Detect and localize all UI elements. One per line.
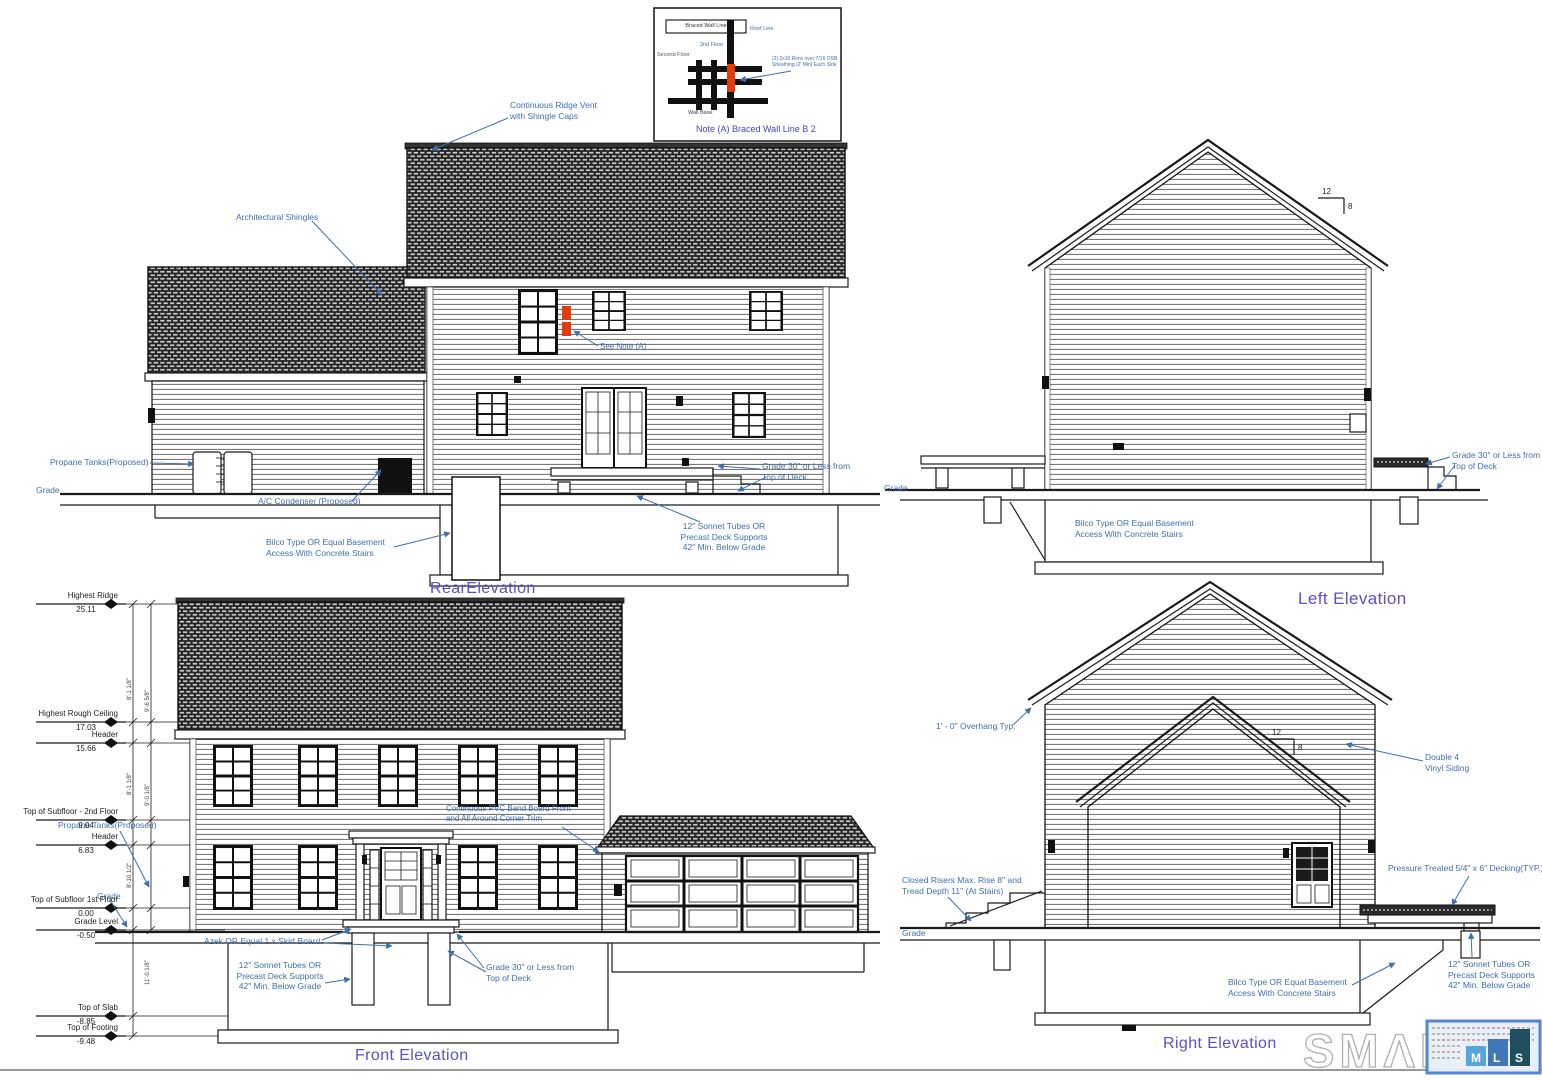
title-left-elevation: Left Elevation <box>1298 589 1407 609</box>
garage-fascia <box>596 847 875 853</box>
left-gable-wall <box>1045 152 1371 490</box>
inset-wall-base-label: Wall Base <box>688 110 713 116</box>
deck-pier <box>1461 931 1480 958</box>
light-fixture <box>676 396 683 406</box>
mls-s-letter: S <box>1515 1051 1523 1065</box>
elevation-drawing-sheet: .k{stroke:#1a1a1a;fill:none;stroke-width… <box>0 0 1542 1080</box>
front-porch <box>343 920 459 933</box>
elevation-marker-value: 6.83 <box>62 846 110 855</box>
elevation-marker-label: Top of Slab <box>6 1003 118 1012</box>
callout-grade30-left: Grade 30" or Less from Top of Deck <box>1452 450 1542 471</box>
callout-azek-skirt-board: Azek OR Equal 1 x Skirt Board <box>204 936 320 947</box>
light-fixture <box>1364 388 1371 401</box>
garage-roof <box>598 816 873 847</box>
dimension-string: 11'-0 1/8" <box>145 960 151 985</box>
porch-lantern <box>436 855 441 864</box>
right-back-door <box>1292 843 1332 907</box>
rear-main-roof <box>407 148 845 278</box>
elevation-marker-label: Header <box>6 832 118 841</box>
elevation-marker-value: 9.04 <box>62 821 110 830</box>
pitch-rise: 12 <box>1322 187 1331 196</box>
pitch-run: 8 <box>1298 743 1303 752</box>
braced-wall-highlight <box>727 64 735 92</box>
rear-garage-roof <box>148 267 425 373</box>
stair-pier <box>994 940 1010 970</box>
bulkhead <box>452 477 500 580</box>
vent <box>1113 443 1124 450</box>
inset-caption: Note (A) Braced Wall Line B 2 <box>696 124 816 135</box>
dimension-string: 8'-1 1/8" <box>127 773 133 795</box>
front-foundation <box>218 943 864 1043</box>
porch-lantern <box>362 855 367 864</box>
mls-badge: M L S <box>1427 1021 1540 1073</box>
pitch-run: 8 <box>1348 202 1353 211</box>
braced-wall-highlight <box>562 306 571 320</box>
deck-pier <box>984 497 1001 523</box>
deck-pier <box>1400 497 1418 524</box>
light-fixture <box>148 408 155 423</box>
callout-architectural-shingles: Architectural Shingles <box>236 212 318 223</box>
callout-grade30-rear: Grade 30" or Less from Top of Deck <box>762 461 862 482</box>
mls-l-letter: L <box>1493 1051 1500 1065</box>
title-right-elevation: Right Elevation <box>1163 1035 1277 1053</box>
inset-rim-note: (2) 2x10 Rims over 7/16 OSB Sheathing (2… <box>772 56 842 68</box>
callout-overhang: 1' - 0" Overhang Typ. <box>936 721 1016 732</box>
inset-second-floor-label: Second Floor <box>657 52 690 58</box>
callout-ac-condenser: A/C Condenser (Proposed) <box>258 496 361 507</box>
mls-m-letter: M <box>1471 1051 1481 1065</box>
inset-roof-line-label: Roof Line <box>750 26 774 32</box>
rear-main-fascia <box>404 278 848 287</box>
left-elevation: 12 8 <box>885 140 1488 574</box>
rear-garage-fascia <box>145 373 427 381</box>
callout-bilco-rear: Bilco Type OR Equal Basement Access With… <box>266 537 398 558</box>
callout-closed-risers: Closed Risers Max. Rise 8" and Tread Dep… <box>902 875 1062 896</box>
rear-window <box>593 292 624 330</box>
light-fixture <box>1048 840 1055 853</box>
grade-label-right-elev: Grade <box>902 928 926 939</box>
elevation-marker-value: 25.11 <box>62 605 110 614</box>
callout-bilco-left: Bilco Type OR Equal Basement Access With… <box>1075 518 1210 539</box>
pitch-rise: 12 <box>1272 728 1281 737</box>
callout-pt-decking: Pressure Treated 5/4" x 6" Decking(TYP.) <box>1388 863 1542 874</box>
callout-grade30-front: Grade 30" or Less from Top of Deck <box>486 962 576 983</box>
dimension-string: 9'-0 1/8" <box>145 784 151 806</box>
dimension-string: 9'-6 5/8" <box>145 690 151 712</box>
light-fixture <box>1042 376 1049 389</box>
callout-see-note-a: See Note (A) <box>600 342 646 352</box>
porch-pier <box>352 933 374 1005</box>
smart-mls-watermark: SMΛRT M L S <box>1303 1021 1540 1077</box>
inset-box-label: Braced Wall Line <box>668 23 744 29</box>
elevation-marker-label: Grade Level <box>6 917 118 926</box>
porch-lantern <box>1283 848 1289 858</box>
callout-pvc-band: Continuous PVC Band Board Front and All … <box>446 804 596 824</box>
callout-ridge-vent: Continuous Ridge Vent with Shingle Caps <box>510 100 620 121</box>
elevation-marker-label: Highest Rough Ceiling <box>6 709 118 718</box>
callout-sonotube-right: 12" Sonnet Tubes OR Precast Deck Support… <box>1448 959 1542 991</box>
light-fixture <box>614 884 622 896</box>
bulkhead-profile <box>1363 950 1443 1013</box>
light-fixture <box>1368 840 1375 853</box>
elevation-marker-value: -0.50 <box>62 931 110 940</box>
rear-window <box>733 393 764 437</box>
right-stairs <box>946 891 1045 928</box>
elevation-marker-label: Top of Footing <box>6 1023 118 1032</box>
elevation-marker-label: Header <box>6 730 118 739</box>
rear-elevation <box>60 143 880 586</box>
grade-label-rear-left: Grade <box>36 485 60 496</box>
right-elevation: 12 8 <box>900 582 1540 1031</box>
left-deck <box>921 456 1045 488</box>
elevation-marker-label: Highest Ridge <box>6 591 118 600</box>
callout-sonotube-front: 12" Sonnet Tubes OR Precast Deck Support… <box>224 960 336 992</box>
vent <box>514 376 521 383</box>
rear-stair-window <box>520 291 557 354</box>
inset-floor-label: 2nd Floor <box>700 42 723 48</box>
vent <box>682 458 689 466</box>
front-main-roof <box>178 602 622 730</box>
light-fixture <box>183 876 189 887</box>
callout-propane-tanks: Propane Tanks(Proposed) <box>50 457 149 468</box>
porch-pier <box>428 933 450 1005</box>
title-rear-elevation: RearElevation <box>430 580 536 598</box>
dimension-string: 8'-1 1/8" <box>127 678 133 700</box>
small-window <box>1350 414 1366 432</box>
callout-bilco-right: Bilco Type OR Equal Basement Access With… <box>1228 977 1368 998</box>
elevation-marker-label: Top of Subfloor 1st Floor <box>6 895 118 904</box>
callout-double4-siding: Double 4 Vinyl Siding <box>1425 752 1495 773</box>
elevation-marker-value: 15.66 <box>62 744 110 753</box>
rear-window <box>477 393 507 435</box>
dimension-string: 8'-10 1/2" <box>127 863 133 888</box>
front-fascia <box>175 730 625 739</box>
braced-wall-highlight <box>562 322 571 336</box>
garage-door <box>626 856 858 932</box>
ac-condenser-unit <box>378 458 412 494</box>
grade-label-left-elev: Grade <box>884 483 908 494</box>
rear-double-door <box>582 388 646 468</box>
callout-sonotube-rear: 12" Sonnet Tubes OR Precast Deck Support… <box>668 521 780 553</box>
rear-window <box>750 292 781 330</box>
left-side-steps <box>1374 458 1456 490</box>
elevation-marker-label: Top of Subfloor - 2nd Floor <box>6 807 118 816</box>
title-front-elevation: Front Elevation <box>355 1047 469 1065</box>
elevation-marker-value: -9.48 <box>62 1037 110 1046</box>
